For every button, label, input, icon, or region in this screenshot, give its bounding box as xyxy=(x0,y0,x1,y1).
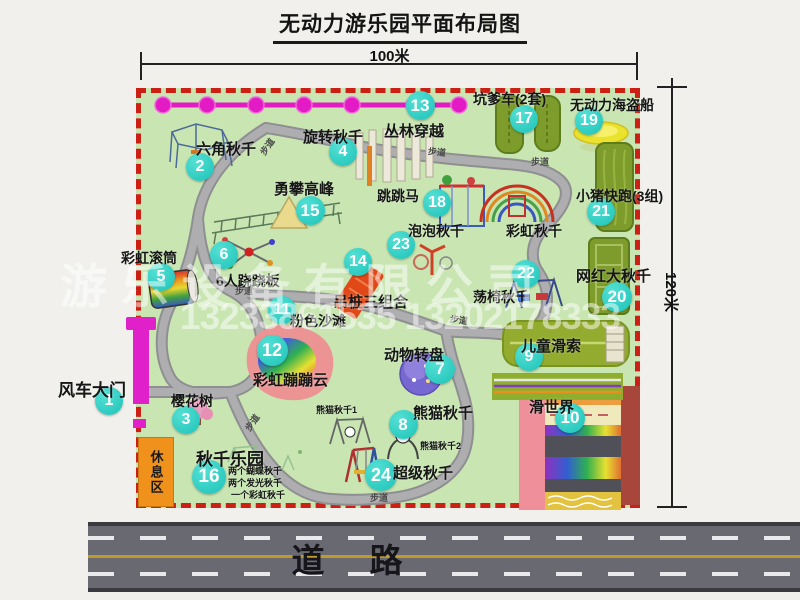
poi-label-1: 风车大门 xyxy=(58,376,126,401)
title-wrap: 无动力游乐园平面布局图 xyxy=(0,8,800,44)
rest-area: 休息区 xyxy=(138,437,174,507)
road-edge-bottom xyxy=(88,588,800,592)
page-title: 无动力游乐园平面布局图 xyxy=(273,8,527,44)
poi-badge-1: 1 xyxy=(95,387,123,415)
width-dimension-label: 100米 xyxy=(141,45,638,66)
park-map xyxy=(136,88,640,508)
road-label: 道 路 xyxy=(150,534,550,582)
height-dimension-tick-bottom xyxy=(657,506,687,508)
height-dimension-label: 120米 xyxy=(661,272,682,312)
screenshot-canvas: 无动力游乐园平面布局图 100米 120米 xyxy=(0,0,800,600)
height-dimension-tick-top xyxy=(657,86,687,88)
road-edge-top xyxy=(88,522,800,526)
